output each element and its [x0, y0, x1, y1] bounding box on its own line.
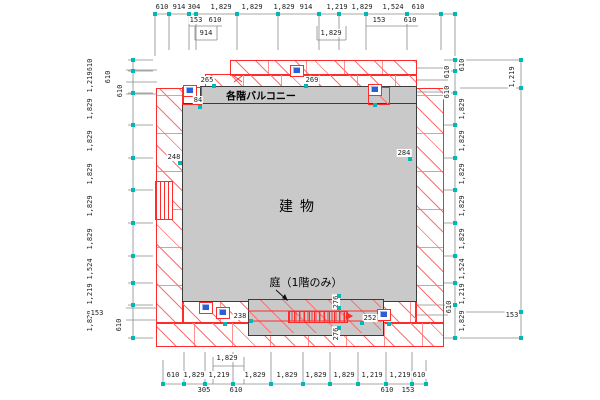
- tick-mark: [410, 382, 414, 386]
- dimension-label: 610: [115, 318, 123, 333]
- tick-mark: [424, 382, 428, 386]
- dimension-label: 610: [443, 85, 451, 100]
- dimension-label: 1,829: [240, 3, 263, 11]
- tick-mark: [337, 306, 341, 310]
- dimension-label: 610: [208, 16, 223, 24]
- tick-mark: [301, 382, 305, 386]
- dimension-label: 252: [363, 314, 378, 322]
- tick-mark: [453, 188, 457, 192]
- downspout-symbol: [216, 307, 230, 319]
- dimension-label: 269: [305, 76, 320, 84]
- dimension-label: 1,219: [388, 371, 411, 379]
- tick-mark: [194, 12, 198, 16]
- dimension-label: 248: [167, 153, 182, 161]
- dimension-label: 1,829: [86, 162, 94, 185]
- tick-mark: [387, 322, 391, 326]
- tick-mark: [178, 161, 182, 165]
- dimension-label: 1,219: [458, 282, 466, 305]
- dimension-label: 610: [155, 3, 170, 11]
- tick-mark: [198, 105, 202, 109]
- tick-mark: [131, 336, 135, 340]
- dimension-label: 1,829: [458, 129, 466, 152]
- stair-ladder: [155, 181, 173, 220]
- tick-mark: [519, 86, 523, 90]
- dimension-label: 610: [380, 386, 395, 394]
- dimension-label: 610: [403, 16, 418, 24]
- tick-mark: [131, 303, 135, 307]
- tick-mark: [203, 382, 207, 386]
- dimension-label: 1,524: [458, 257, 466, 280]
- dimension-label: 610: [458, 58, 466, 73]
- tick-mark: [276, 12, 280, 16]
- dimension-label: 153: [189, 16, 204, 24]
- dimension-label: 1,829: [209, 3, 232, 11]
- dimension-label: 610: [229, 386, 244, 394]
- tick-mark: [453, 336, 457, 340]
- tick-mark: [131, 221, 135, 225]
- balcony-label: 各階バルコニー: [226, 88, 296, 103]
- tick-mark: [373, 103, 377, 107]
- eave-hatch-right: [415, 88, 444, 324]
- dimension-label: 84: [193, 96, 203, 104]
- dimension-label: 1,829: [215, 354, 238, 362]
- dimension-label: 1,829: [458, 227, 466, 250]
- dimension-label: 1,829: [319, 29, 342, 37]
- dimension-label: 1,524: [86, 257, 94, 280]
- tick-mark: [384, 382, 388, 386]
- dimension-label: 304: [187, 3, 202, 11]
- dimension-label: 1,829: [332, 371, 355, 379]
- tick-mark: [304, 84, 308, 88]
- tick-mark: [453, 91, 457, 95]
- dimension-label: 914: [199, 29, 214, 37]
- dimension-label: 1,829: [86, 129, 94, 152]
- tick-mark: [131, 123, 135, 127]
- tick-mark: [453, 156, 457, 160]
- dimension-label: 1,524: [381, 3, 404, 11]
- dimension-label: 914: [299, 3, 314, 11]
- tick-mark: [337, 12, 341, 16]
- garden-ladder: [288, 311, 348, 323]
- dimension-label: 1,829: [458, 309, 466, 332]
- dimension-label: 1,829: [458, 194, 466, 217]
- dimension-label: 153: [505, 311, 520, 319]
- tick-mark: [167, 12, 171, 16]
- dimension-label: 1,829: [275, 371, 298, 379]
- dimension-label: 1,829: [304, 371, 327, 379]
- dimension-label: 1,829: [86, 97, 94, 120]
- dimension-label: 305: [197, 386, 212, 394]
- downspout-symbol: [368, 84, 382, 96]
- tick-mark: [453, 12, 457, 16]
- tick-mark: [453, 123, 457, 127]
- tick-mark: [223, 322, 227, 326]
- tick-mark: [131, 188, 135, 192]
- tick-mark: [453, 254, 457, 258]
- tick-mark: [519, 58, 523, 62]
- dimension-label: 265: [200, 76, 215, 84]
- tick-mark: [405, 12, 409, 16]
- tick-mark: [249, 319, 253, 323]
- dimension-label: 1,829: [272, 3, 295, 11]
- building-label: 建物: [279, 196, 321, 216]
- tick-mark: [161, 382, 165, 386]
- tick-mark: [439, 12, 443, 16]
- tick-mark: [408, 157, 412, 161]
- tick-mark: [235, 12, 239, 16]
- tick-mark: [337, 294, 341, 298]
- dimension-label: 610: [445, 300, 453, 315]
- tick-mark: [453, 221, 457, 225]
- garden-label: 庭（1階のみ）: [270, 274, 343, 290]
- dimension-label: 1,829: [458, 162, 466, 185]
- dimension-label: 238: [233, 312, 248, 320]
- tick-mark: [131, 91, 135, 95]
- downspout-symbol: [290, 65, 304, 77]
- tick-mark: [453, 58, 457, 62]
- dimension-label: 610: [104, 70, 112, 85]
- dimension-label: 1,829: [86, 194, 94, 217]
- dimension-label: 1,219: [360, 371, 383, 379]
- dimension-label: 1,219: [508, 65, 516, 88]
- dimension-label: 1,829: [243, 371, 266, 379]
- tick-mark: [187, 12, 191, 16]
- tick-mark: [453, 281, 457, 285]
- floor-plan-canvas: 各階バルコニー 建物 庭（1階のみ） 6109143041,8291,8291,…: [0, 0, 600, 400]
- tick-mark: [317, 12, 321, 16]
- tick-mark: [328, 382, 332, 386]
- dimension-label: 1,219: [86, 282, 94, 305]
- dimension-label: 610: [166, 371, 181, 379]
- dimension-label: 610: [443, 65, 451, 80]
- tick-mark: [337, 326, 341, 330]
- dimension-label: 610: [411, 3, 426, 11]
- dimension-label: 1,829: [350, 3, 373, 11]
- dimension-label: 1,219: [207, 371, 230, 379]
- dimension-label: 153: [372, 16, 387, 24]
- tick-mark: [131, 58, 135, 62]
- dimension-label: 1,829: [86, 227, 94, 250]
- tick-mark: [153, 12, 157, 16]
- tick-mark: [182, 382, 186, 386]
- tick-mark: [131, 69, 135, 73]
- dimension-label: 284: [397, 149, 412, 157]
- tick-mark: [269, 382, 273, 386]
- dimension-label: 1,219: [86, 70, 94, 93]
- dimension-label: 914: [172, 3, 187, 11]
- dimension-label: 610: [412, 371, 427, 379]
- dimension-label: 1,219: [325, 3, 348, 11]
- dimension-label: 153: [401, 386, 416, 394]
- tick-mark: [364, 12, 368, 16]
- tick-mark: [131, 254, 135, 258]
- tick-mark: [453, 69, 457, 73]
- tick-mark: [212, 84, 216, 88]
- tick-mark: [131, 281, 135, 285]
- tick-mark: [356, 382, 360, 386]
- tick-mark: [453, 303, 457, 307]
- tick-mark: [360, 321, 364, 325]
- dimension-label: 1,829: [458, 97, 466, 120]
- tick-mark: [131, 156, 135, 160]
- dimension-label: 610: [116, 84, 124, 99]
- tick-mark: [519, 336, 523, 340]
- tick-mark: [231, 382, 235, 386]
- tick-mark: [519, 310, 523, 314]
- downspout-symbol: [377, 309, 391, 321]
- dimension-label: 153: [90, 309, 105, 317]
- dimension-label: 1,829: [182, 371, 205, 379]
- downspout-symbol: [199, 302, 213, 314]
